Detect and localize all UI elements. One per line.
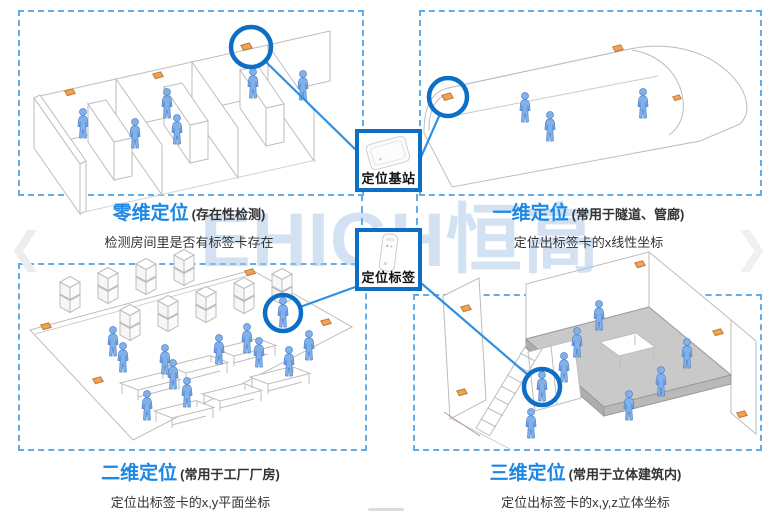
caption-title-row: 三维定位(常用于立体建筑内) bbox=[413, 458, 758, 485]
quadrant-frame-zero-dimensional bbox=[18, 10, 364, 196]
base-station-device-icon bbox=[359, 133, 418, 173]
caption-description: 定位出标签卡的x线性坐标 bbox=[419, 232, 758, 251]
caption-one-dimensional: 一维定位(常用于隧道、管廊) 定位出标签卡的x线性坐标 bbox=[419, 198, 758, 251]
caption-title: 一维定位 bbox=[493, 203, 569, 224]
caption-three-dimensional: 三维定位(常用于立体建筑内) 定位出标签卡的x,y,z立体坐标 bbox=[413, 458, 758, 511]
diagram-canvas: EHIGH恒高 定位基站 bbox=[0, 0, 772, 514]
tag-box: 定位标签 bbox=[355, 228, 422, 291]
caption-title: 二维定位 bbox=[101, 463, 177, 484]
caption-title-row: 一维定位(常用于隧道、管廊) bbox=[419, 198, 758, 225]
caption-description: 检测房间里是否有标签卡存在 bbox=[18, 232, 360, 251]
caption-two-dimensional: 二维定位(常用于工厂厂房) 定位出标签卡的x,y平面坐标 bbox=[18, 458, 363, 511]
caption-title: 三维定位 bbox=[490, 463, 566, 484]
caption-title-row: 零维定位(存在性检测) bbox=[18, 198, 360, 225]
caption-qualifier: (存在性检测) bbox=[192, 207, 266, 222]
page-indicator bbox=[368, 508, 404, 511]
carousel-prev-icon[interactable]: ❮ bbox=[8, 224, 43, 272]
caption-qualifier: (常用于工厂厂房) bbox=[180, 467, 280, 482]
caption-title-row: 二维定位(常用于工厂厂房) bbox=[18, 458, 363, 485]
caption-description: 定位出标签卡的x,y平面坐标 bbox=[18, 492, 363, 511]
carousel-next-icon[interactable]: ❯ bbox=[734, 224, 769, 272]
caption-title: 零维定位 bbox=[113, 203, 189, 224]
caption-description: 定位出标签卡的x,y,z立体坐标 bbox=[413, 492, 758, 511]
base-station-box: 定位基站 bbox=[355, 129, 422, 192]
quadrant-frame-two-dimensional bbox=[18, 263, 367, 451]
quadrant-frame-three-dimensional bbox=[413, 294, 762, 451]
base-station-label: 定位基站 bbox=[359, 168, 418, 187]
tag-label: 定位标签 bbox=[359, 267, 418, 286]
quadrant-frame-one-dimensional bbox=[419, 10, 762, 196]
caption-zero-dimensional: 零维定位(存在性检测) 检测房间里是否有标签卡存在 bbox=[18, 198, 360, 251]
caption-qualifier: (常用于隧道、管廊) bbox=[572, 207, 685, 222]
caption-qualifier: (常用于立体建筑内) bbox=[569, 467, 682, 482]
